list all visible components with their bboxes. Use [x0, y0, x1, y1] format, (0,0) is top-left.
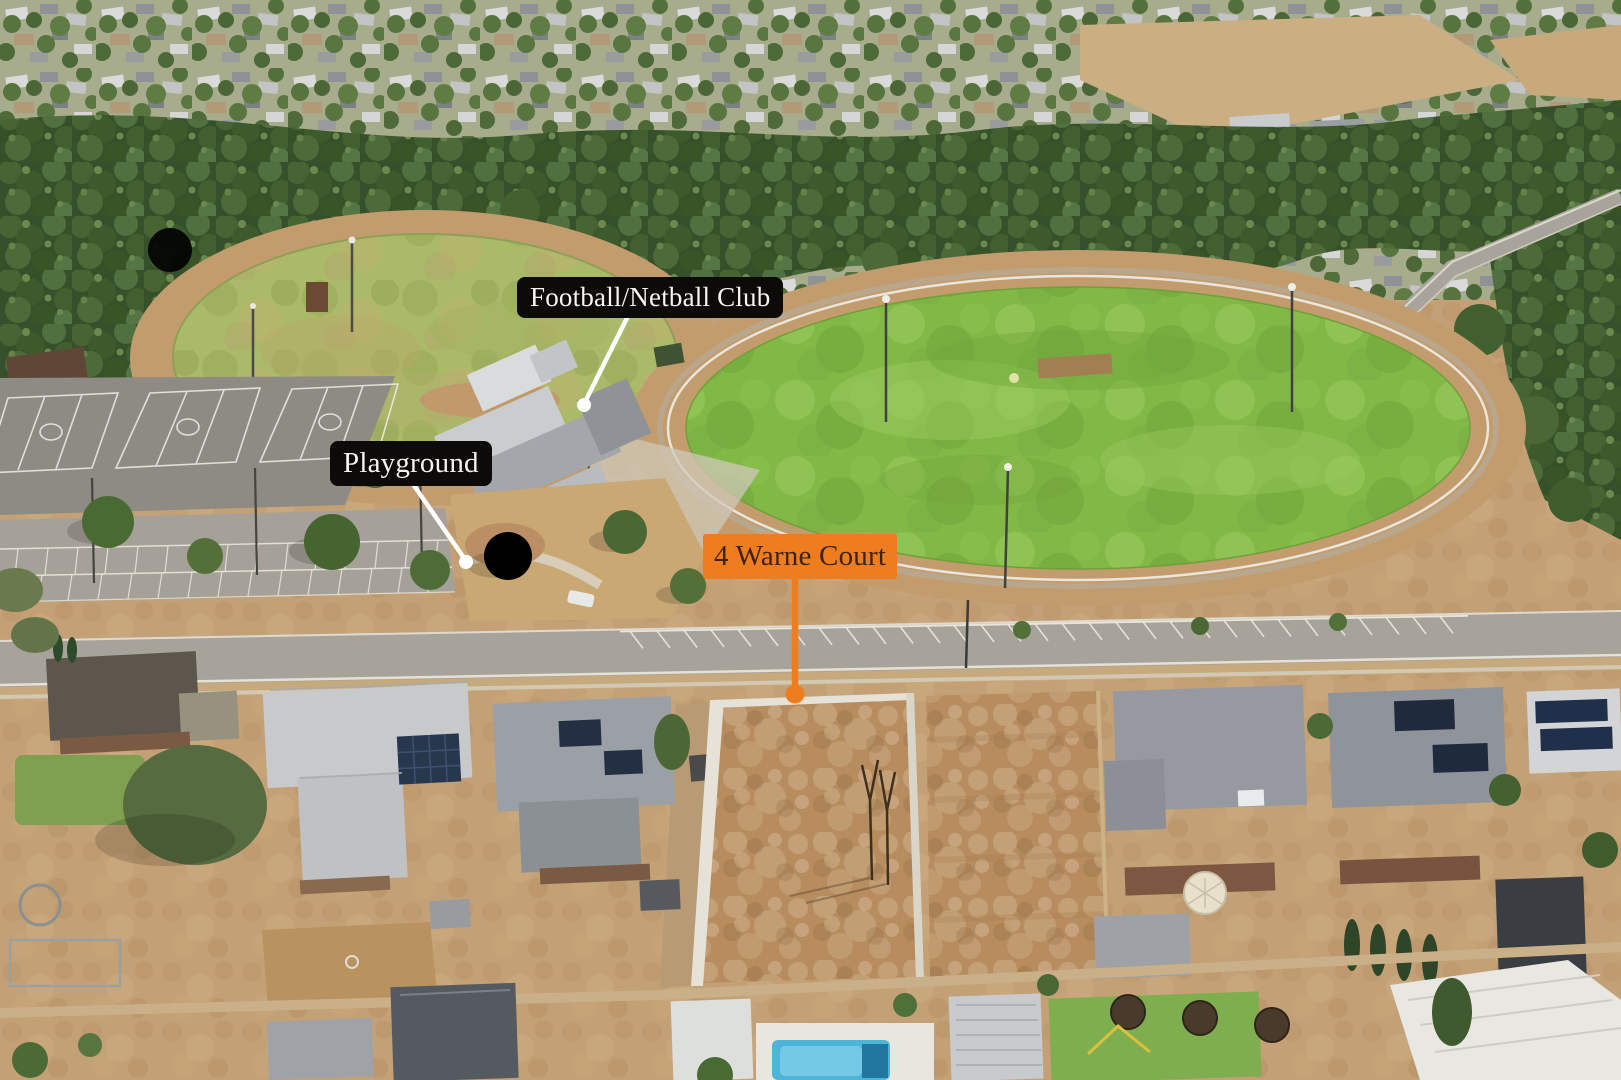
club-marker-dot — [577, 398, 591, 412]
vacant-lots — [660, 691, 1108, 988]
football-netball-club-label: Football/Netball Club — [517, 277, 783, 318]
playground-marker-dot — [459, 555, 473, 569]
property-marker-dot — [786, 685, 805, 704]
subject-lot — [697, 697, 918, 983]
aerial-photo: Football/Netball Club Playground 4 Warne… — [0, 0, 1621, 1080]
property-address-label: 4 Warne Court — [703, 534, 897, 579]
playground-label: Playground — [330, 441, 492, 486]
swimming-pool — [756, 1023, 934, 1080]
